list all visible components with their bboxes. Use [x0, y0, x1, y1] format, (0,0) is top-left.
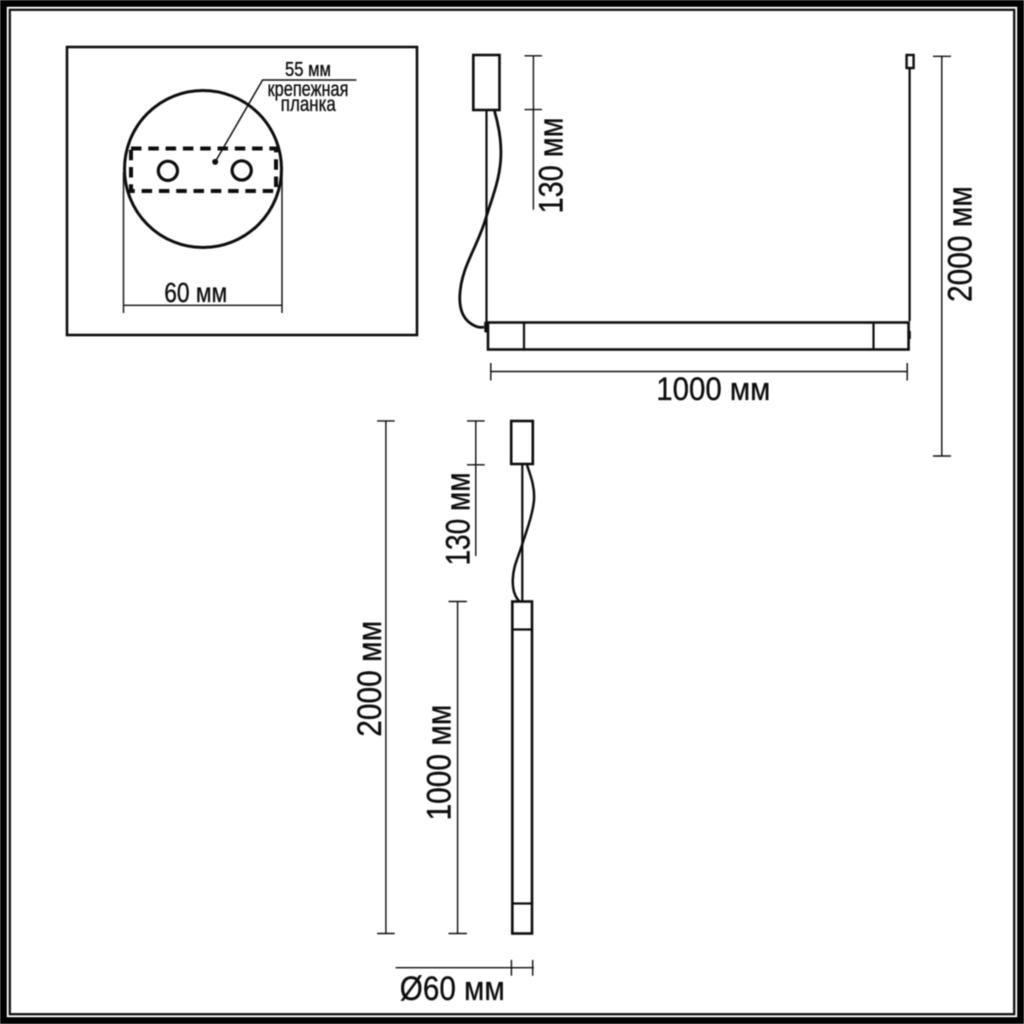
svg-text:1000 мм: 1000 мм	[656, 371, 770, 407]
svg-text:2000 мм: 2000 мм	[941, 186, 979, 302]
svg-text:130 мм: 130 мм	[533, 118, 571, 214]
svg-text:2000 мм: 2000 мм	[351, 621, 389, 737]
svg-text:Ø60 мм: Ø60 мм	[400, 970, 505, 1008]
svg-text:60 мм: 60 мм	[164, 277, 227, 308]
svg-text:1000 мм: 1000 мм	[420, 705, 458, 821]
svg-text:130 мм: 130 мм	[440, 473, 478, 566]
svg-text:планка: планка	[281, 93, 336, 116]
